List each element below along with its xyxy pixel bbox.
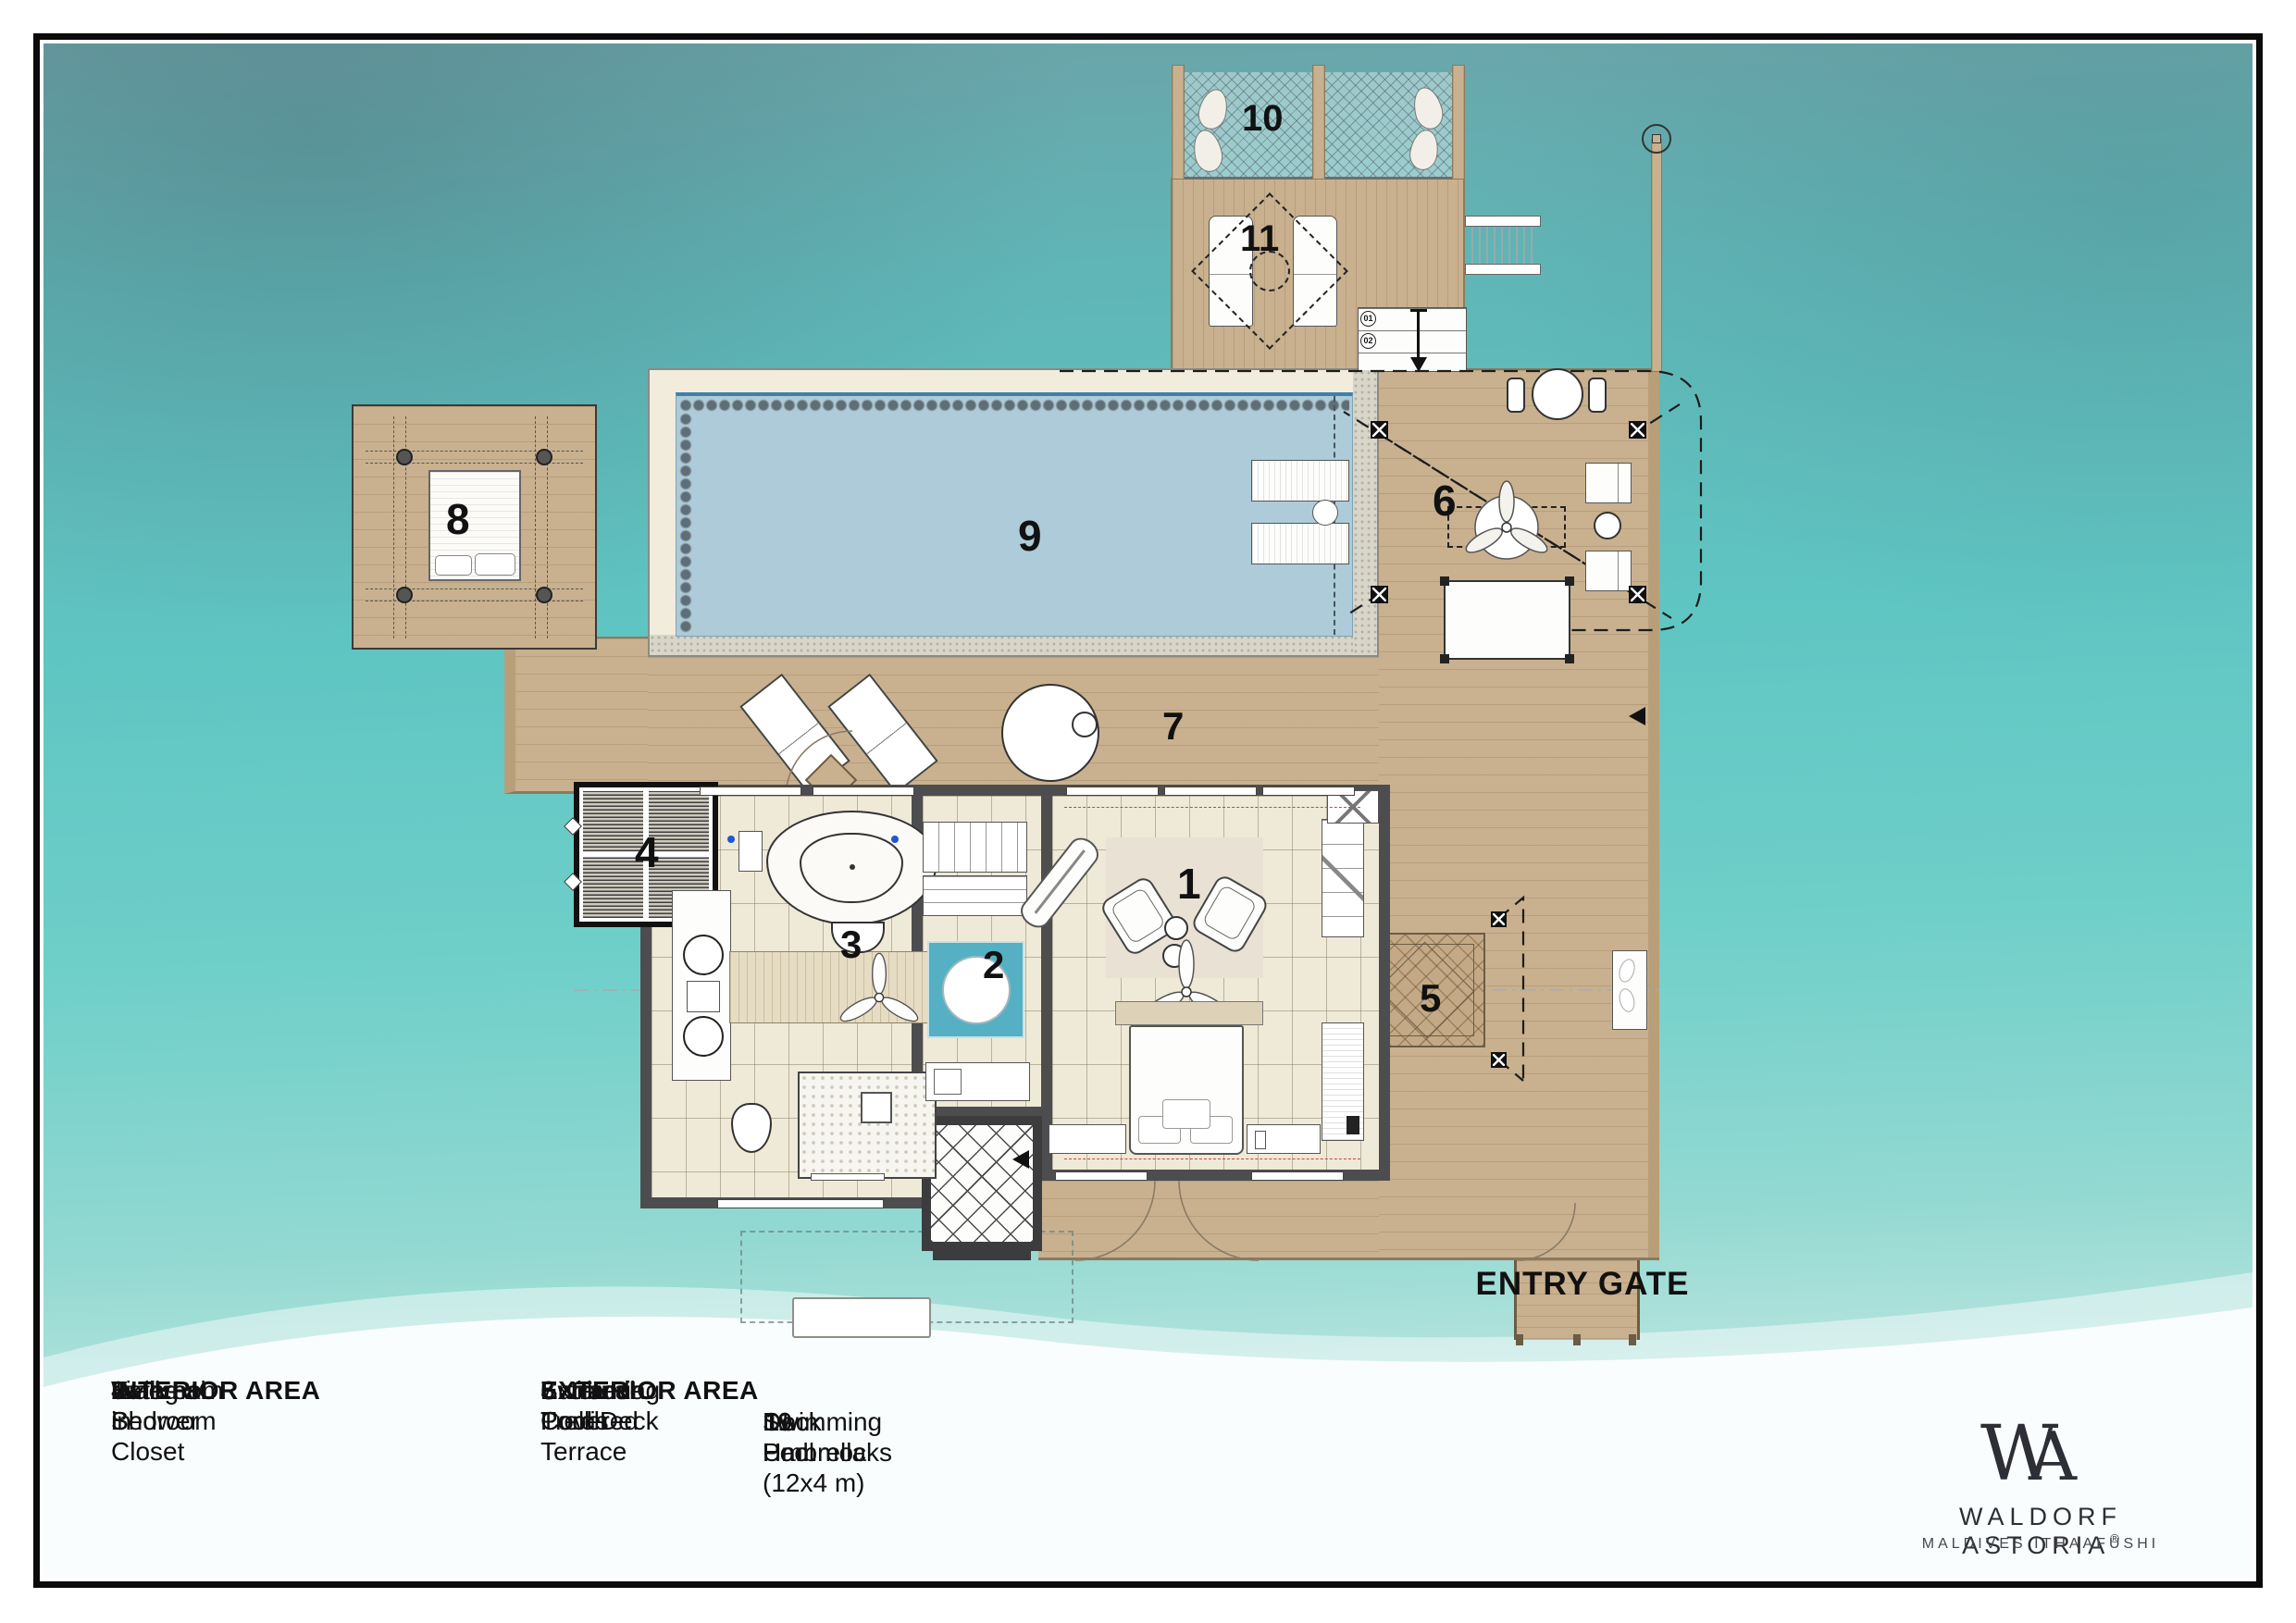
- control-panel: [1255, 1131, 1266, 1149]
- wa-monogram: W A: [1980, 1418, 2101, 1495]
- vanity-cabinet: [687, 981, 720, 1012]
- legend-item-label: Sunbed Trellis: [540, 1375, 630, 1436]
- marker-dot: [727, 836, 735, 843]
- porch-column: [1491, 911, 1507, 927]
- window: [813, 787, 914, 796]
- brand-location: MALDIVES ITHAAFUSHI: [1888, 1536, 2193, 1553]
- room-marker-11: 11: [1240, 220, 1279, 257]
- side-table: [1594, 512, 1621, 539]
- bath-shelf: [738, 831, 763, 872]
- ceiling-fan: [838, 957, 920, 1038]
- terrace-column: [1629, 586, 1646, 603]
- floor-plan-page: 01 02: [0, 0, 2296, 1623]
- shower-head: [861, 1092, 892, 1123]
- shower-door: [811, 1173, 885, 1181]
- room-marker-6: 6: [1433, 479, 1457, 522]
- dining-chair: [1588, 378, 1607, 413]
- bathtub-drain: [850, 864, 855, 870]
- window: [1164, 787, 1257, 796]
- room-marker-2: 2: [983, 946, 1004, 985]
- room-marker-3: 3: [840, 925, 862, 964]
- luggage-bench: [925, 1062, 1030, 1101]
- window: [1251, 1171, 1344, 1181]
- window: [1055, 1171, 1148, 1181]
- coffee-table: [1164, 916, 1188, 940]
- terrace-armchair: [1585, 551, 1632, 591]
- appliance: [1347, 1116, 1359, 1134]
- axis-arrow: [1629, 707, 1645, 725]
- armchair-cushion: [1201, 884, 1257, 942]
- daybed-post: [1565, 654, 1574, 663]
- sink: [683, 935, 724, 975]
- foyer-step: [933, 1251, 1031, 1260]
- room-marker-1: 1: [1177, 862, 1201, 905]
- legend-item-label: External Shower: [111, 1375, 206, 1436]
- room-marker-5: 5: [1420, 979, 1441, 1018]
- daybed-post: [1440, 654, 1449, 663]
- terrace-column: [1371, 586, 1388, 603]
- porch-column: [1491, 1052, 1507, 1068]
- terrace-column: [1629, 421, 1646, 439]
- indoor-shower: [798, 1072, 937, 1179]
- cabinet: [1322, 819, 1364, 937]
- curtain-track: [1064, 807, 1360, 808]
- terrace-column: [1371, 421, 1388, 439]
- room-marker-4: 4: [635, 831, 659, 873]
- room-marker-7: 7: [1162, 707, 1184, 746]
- window-seat: [1049, 1124, 1126, 1154]
- curtain-track: [1064, 1158, 1360, 1159]
- dining-table: [1532, 368, 1583, 420]
- daybed-post: [1440, 576, 1449, 586]
- ceiling-fan: [1462, 483, 1551, 572]
- window: [1066, 787, 1159, 796]
- pillow: [1162, 1099, 1210, 1129]
- window-seat: [1247, 1124, 1321, 1154]
- entry-gate-label: ENTRY GATE: [1462, 1266, 1703, 1303]
- terrace-daybed: [1444, 580, 1570, 660]
- wardrobe-shelves: [923, 875, 1027, 916]
- headboard: [1115, 1001, 1263, 1025]
- minibar-cabinet: [1322, 1022, 1364, 1141]
- entry-foyer: [922, 1116, 1042, 1251]
- wardrobe-hanging: [923, 822, 1027, 873]
- dining-chair: [1507, 378, 1525, 413]
- room-marker-9: 9: [1018, 514, 1042, 557]
- brand-block: W A WALDORF ASTORIA® MALDIVES ITHAAFUSHI: [1888, 1418, 2193, 1566]
- bed: [1129, 1025, 1244, 1155]
- window: [700, 787, 801, 796]
- axis-arrow: [1012, 1150, 1029, 1169]
- legend-item-label: Deck Umbrella: [763, 1406, 866, 1468]
- daybed-post: [1565, 576, 1574, 586]
- monogram-a: A: [2029, 1419, 2077, 1493]
- room-marker-10: 10: [1242, 100, 1284, 137]
- window: [717, 1199, 884, 1208]
- luggage: [934, 1069, 962, 1095]
- room-marker-8: 8: [446, 498, 470, 540]
- marker-dot: [891, 836, 899, 843]
- sink: [683, 1016, 724, 1057]
- window: [1262, 787, 1355, 796]
- armchair-cushion: [1110, 886, 1166, 945]
- terrace-armchair: [1585, 463, 1632, 503]
